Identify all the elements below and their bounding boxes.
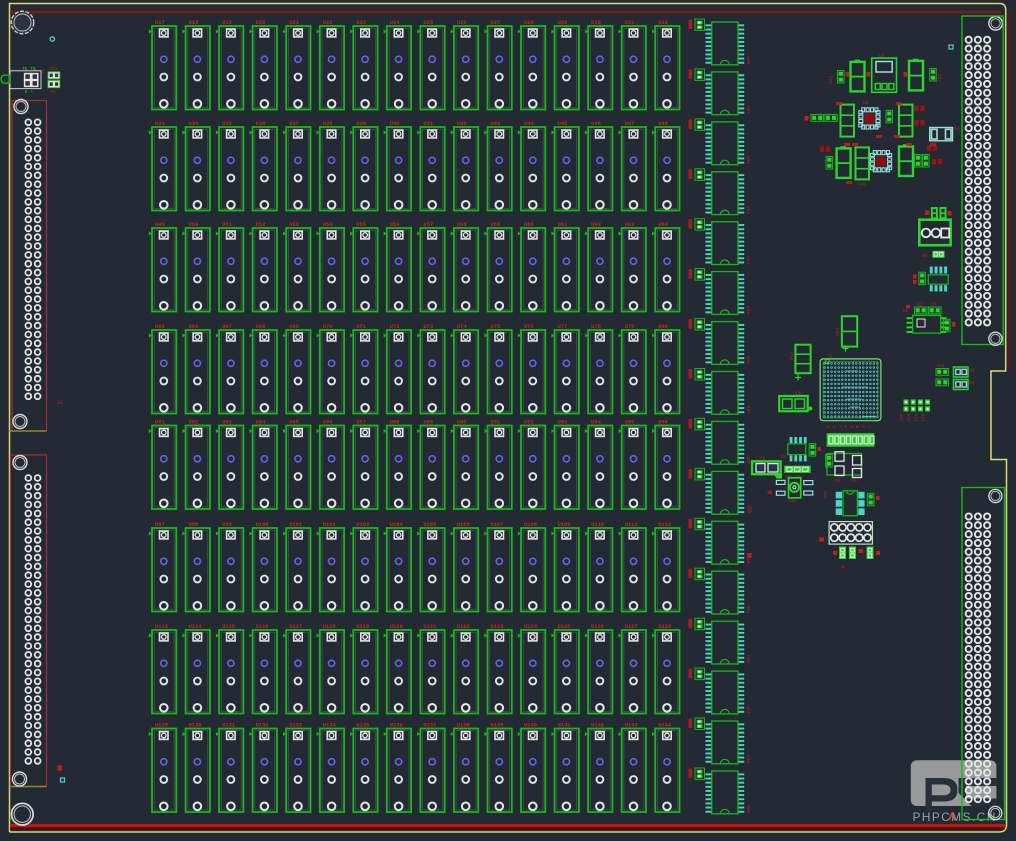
svg-text:U50: U50 [189,222,199,228]
svg-text:U51: U51 [222,222,232,228]
svg-text:U82: U82 [189,420,199,426]
svg-text:U34: U34 [189,121,199,127]
svg-text:TE TB: TE TB [22,66,36,72]
svg-text:U30: U30 [745,56,751,65]
svg-text:U18: U18 [189,20,199,26]
svg-text:U3: U3 [863,100,869,106]
svg-text:U67: U67 [222,324,232,330]
svg-text:U118: U118 [323,624,336,630]
svg-text:U34: U34 [745,256,751,265]
svg-text:U39: U39 [356,121,366,127]
svg-text:U28: U28 [524,20,534,26]
svg-text:U53: U53 [289,222,299,228]
svg-text:U45: U45 [745,805,751,814]
svg-text:U52: U52 [256,222,266,228]
svg-text:U87: U87 [356,420,366,426]
svg-text:U40: U40 [390,121,400,127]
svg-text:U9C: U9C [789,500,797,504]
svg-text:U140: U140 [524,723,537,729]
svg-text:U29: U29 [558,20,568,26]
svg-text:U31: U31 [745,106,751,115]
svg-text:U72: U72 [390,324,400,330]
svg-text:U123: U123 [491,624,504,630]
svg-text:R11: R11 [898,414,902,422]
svg-text:U105: U105 [423,522,436,528]
svg-text:U21: U21 [289,20,299,26]
svg-text:U2: U2 [879,53,885,59]
svg-text:U45: U45 [558,121,568,127]
svg-text:D8: D8 [970,370,976,374]
svg-text:U38: U38 [745,455,751,464]
svg-text:U75: U75 [491,324,501,330]
svg-text:U114: U114 [189,624,203,630]
svg-text:PHPCMS.CN: PHPCMS.CN [913,810,997,824]
svg-text:U99: U99 [833,480,841,484]
svg-text:R12: R12 [905,414,909,422]
svg-text:U104: U104 [390,522,404,528]
svg-text:C12: C12 [916,304,924,308]
svg-text:U96: U96 [658,420,668,426]
svg-text:U80: U80 [658,324,668,330]
svg-text:U11: U11 [822,491,826,499]
svg-text:U77: U77 [558,324,568,330]
svg-text:U26: U26 [457,20,467,26]
svg-text:U44: U44 [745,755,751,764]
svg-text:U26: U26 [747,505,753,513]
svg-text:U106: U106 [457,522,470,528]
svg-text:U68: U68 [256,324,266,330]
svg-text:U43: U43 [491,121,501,127]
svg-text:U126: U126 [591,624,604,630]
svg-text:P2: P2 [50,89,56,95]
svg-text:U57: U57 [423,222,433,228]
svg-text:U109: U109 [558,522,571,528]
svg-text:U32: U32 [745,156,751,165]
svg-text:U41: U41 [423,121,433,127]
svg-text:U139: U139 [491,723,504,729]
svg-text:U116: U116 [256,624,269,630]
svg-text:R4: R4 [954,126,960,132]
svg-text:C31: C31 [936,74,942,82]
svg-text:U25: U25 [423,20,433,26]
svg-text:CH1: CH1 [49,66,58,72]
svg-text:U120: U120 [390,624,403,630]
svg-text:U85: U85 [289,420,299,426]
svg-text:U90: U90 [457,420,467,426]
svg-text:U131: U131 [222,723,235,729]
svg-text:U38: U38 [323,121,333,127]
svg-text:D9: D9 [937,376,943,380]
svg-text:U83: U83 [222,420,232,426]
svg-text:U125: U125 [558,624,571,630]
svg-text:U74: U74 [457,324,467,330]
svg-text:U8: U8 [781,456,787,460]
svg-text:U142: U142 [591,723,604,729]
svg-text:C30: C30 [827,76,833,84]
svg-text:B: B [42,69,45,75]
svg-text:U30: U30 [591,20,601,26]
svg-text:U32: U32 [658,20,668,26]
svg-text:U84: U84 [256,420,266,426]
svg-text:K +: K + [25,89,34,95]
svg-text:R13: R13 [912,414,916,422]
svg-text:U20: U20 [256,20,266,26]
svg-text:U36: U36 [745,356,751,365]
svg-text:U112: U112 [658,522,671,528]
svg-text:U4C: U4C [858,181,866,187]
svg-text:U73: U73 [423,324,433,330]
svg-text:U107: U107 [491,522,504,528]
svg-text:U42: U42 [745,655,751,664]
svg-text:U54: U54 [323,222,333,228]
svg-text:U76: U76 [524,324,534,330]
svg-text:U102: U102 [323,522,336,528]
svg-text:U49: U49 [155,222,165,228]
svg-text:U98: U98 [189,522,199,528]
svg-text:U86: U86 [323,420,333,426]
svg-text:U60: U60 [524,222,534,228]
svg-text:D43: D43 [937,365,945,369]
svg-text:U78: U78 [591,324,601,330]
svg-text:U6: U6 [903,310,909,314]
svg-text:U42: U42 [457,121,467,127]
svg-text:C6: C6 [931,304,937,308]
svg-text:U47: U47 [625,121,635,127]
svg-text:U27: U27 [491,20,501,26]
svg-text:U24: U24 [390,20,400,26]
svg-text:C8C: C8C [795,391,803,397]
svg-text:U23: U23 [356,20,366,26]
svg-text:U37: U37 [745,406,751,415]
svg-text:U133: U133 [289,723,302,729]
svg-text:U37: U37 [289,121,299,127]
svg-text:U130: U130 [189,723,202,729]
svg-text:U56: U56 [390,222,400,228]
svg-text:U43: U43 [745,705,751,714]
svg-text:U132: U132 [256,723,269,729]
svg-text:U99: U99 [222,522,232,528]
svg-text:U22: U22 [323,20,333,26]
svg-text:U89: U89 [423,420,433,426]
svg-text:U117: U117 [289,624,302,630]
svg-text:U135: U135 [356,723,369,729]
svg-text:U108: U108 [524,522,537,528]
svg-text:U31: U31 [625,20,635,26]
svg-text:U143: U143 [625,723,638,729]
svg-text:U79: U79 [625,324,635,330]
svg-text:U115: U115 [222,624,235,630]
svg-text:U127: U127 [625,624,638,630]
svg-text:U1: U1 [828,356,834,360]
svg-text:U137: U137 [423,723,436,729]
svg-text:U65: U65 [155,324,165,330]
svg-text:C18: C18 [788,352,794,360]
svg-text:U121: U121 [423,624,436,630]
svg-text:U66: U66 [189,324,199,330]
svg-text:U141: U141 [558,723,571,729]
svg-text:U111: U111 [625,522,638,528]
svg-text:U19: U19 [222,20,232,26]
svg-text:U62: U62 [591,222,601,228]
svg-text:U69: U69 [289,324,299,330]
svg-text:U134: U134 [323,723,337,729]
svg-text:U41: U41 [745,605,751,614]
svg-text:C17: C17 [834,328,840,336]
svg-text:R8: R8 [922,253,928,259]
svg-text:U136: U136 [390,723,403,729]
svg-text:U63: U63 [625,222,635,228]
svg-text:U103: U103 [356,522,369,528]
svg-text:U119: U119 [356,624,369,630]
svg-text:U33: U33 [155,121,165,127]
svg-text:U122: U122 [457,624,470,630]
svg-text:U46: U46 [591,121,601,127]
svg-text:U124: U124 [524,624,538,630]
svg-text:U95: U95 [625,420,635,426]
svg-text:U59: U59 [491,222,501,228]
svg-text:U44: U44 [524,121,534,127]
svg-text:U110: U110 [591,522,604,528]
svg-text:D1: D1 [970,382,976,386]
svg-text:U128: U128 [658,624,671,630]
svg-text:U33: U33 [745,206,751,215]
svg-text:U93: U93 [558,420,568,426]
svg-text:U36: U36 [256,121,266,127]
svg-text:U35: U35 [745,306,751,315]
svg-text:R14: R14 [920,414,924,422]
svg-text:U70: U70 [323,324,333,330]
svg-text:U17: U17 [155,20,165,26]
svg-text:U81: U81 [155,420,165,426]
svg-text:U100: U100 [256,522,269,528]
svg-text:U88: U88 [390,420,400,426]
svg-text:U92: U92 [524,420,534,426]
svg-text:U129: U129 [155,723,168,729]
svg-text:J6: J6 [57,400,63,406]
svg-text:U91: U91 [491,420,501,426]
svg-text:U48: U48 [658,121,668,127]
svg-text:U64: U64 [658,222,668,228]
svg-text:U144: U144 [658,723,672,729]
svg-text:U61: U61 [558,222,568,228]
svg-text:U94: U94 [591,420,601,426]
svg-text:U55: U55 [356,222,366,228]
svg-text:U113: U113 [155,624,168,630]
svg-text:C9C: C9C [850,480,858,484]
svg-text:U71: U71 [356,324,366,330]
svg-text:U101: U101 [289,522,302,528]
svg-text:U138: U138 [457,723,470,729]
svg-text:C9: C9 [760,458,766,462]
svg-text:U35: U35 [222,121,232,127]
svg-text:U97: U97 [155,522,165,528]
svg-text:U58: U58 [457,222,467,228]
